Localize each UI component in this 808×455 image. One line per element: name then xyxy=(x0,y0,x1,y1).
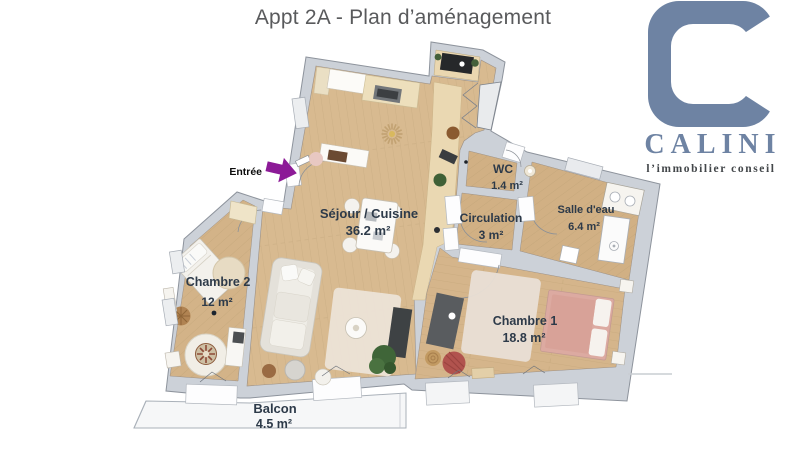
svg-text:18.8 m²: 18.8 m² xyxy=(502,331,545,345)
svg-text:6.4 m²: 6.4 m² xyxy=(568,221,600,233)
svg-text:36.2 m²: 36.2 m² xyxy=(346,223,391,238)
svg-text:WC: WC xyxy=(493,162,513,176)
svg-text:Séjour / Cuisine: Séjour / Cuisine xyxy=(320,206,418,221)
svg-text:Salle d'eau: Salle d'eau xyxy=(557,204,614,216)
svg-text:l’immobilier conseil: l’immobilier conseil xyxy=(646,163,775,175)
svg-text:Circulation: Circulation xyxy=(460,211,523,225)
svg-text:Chambre 2: Chambre 2 xyxy=(186,275,251,289)
svg-text:Appt 2A - Plan d’aménagement: Appt 2A - Plan d’aménagement xyxy=(255,6,551,29)
svg-text:Balcon: Balcon xyxy=(253,401,296,416)
svg-text:1.4 m²: 1.4 m² xyxy=(491,180,523,192)
svg-text:Chambre 1: Chambre 1 xyxy=(493,314,558,328)
svg-text:4.5 m²: 4.5 m² xyxy=(256,417,292,431)
svg-text:12 m²: 12 m² xyxy=(201,295,232,309)
svg-text:Entrée: Entrée xyxy=(229,166,262,178)
svg-text:CALINI: CALINI xyxy=(644,129,781,160)
svg-text:3 m²: 3 m² xyxy=(479,228,504,242)
